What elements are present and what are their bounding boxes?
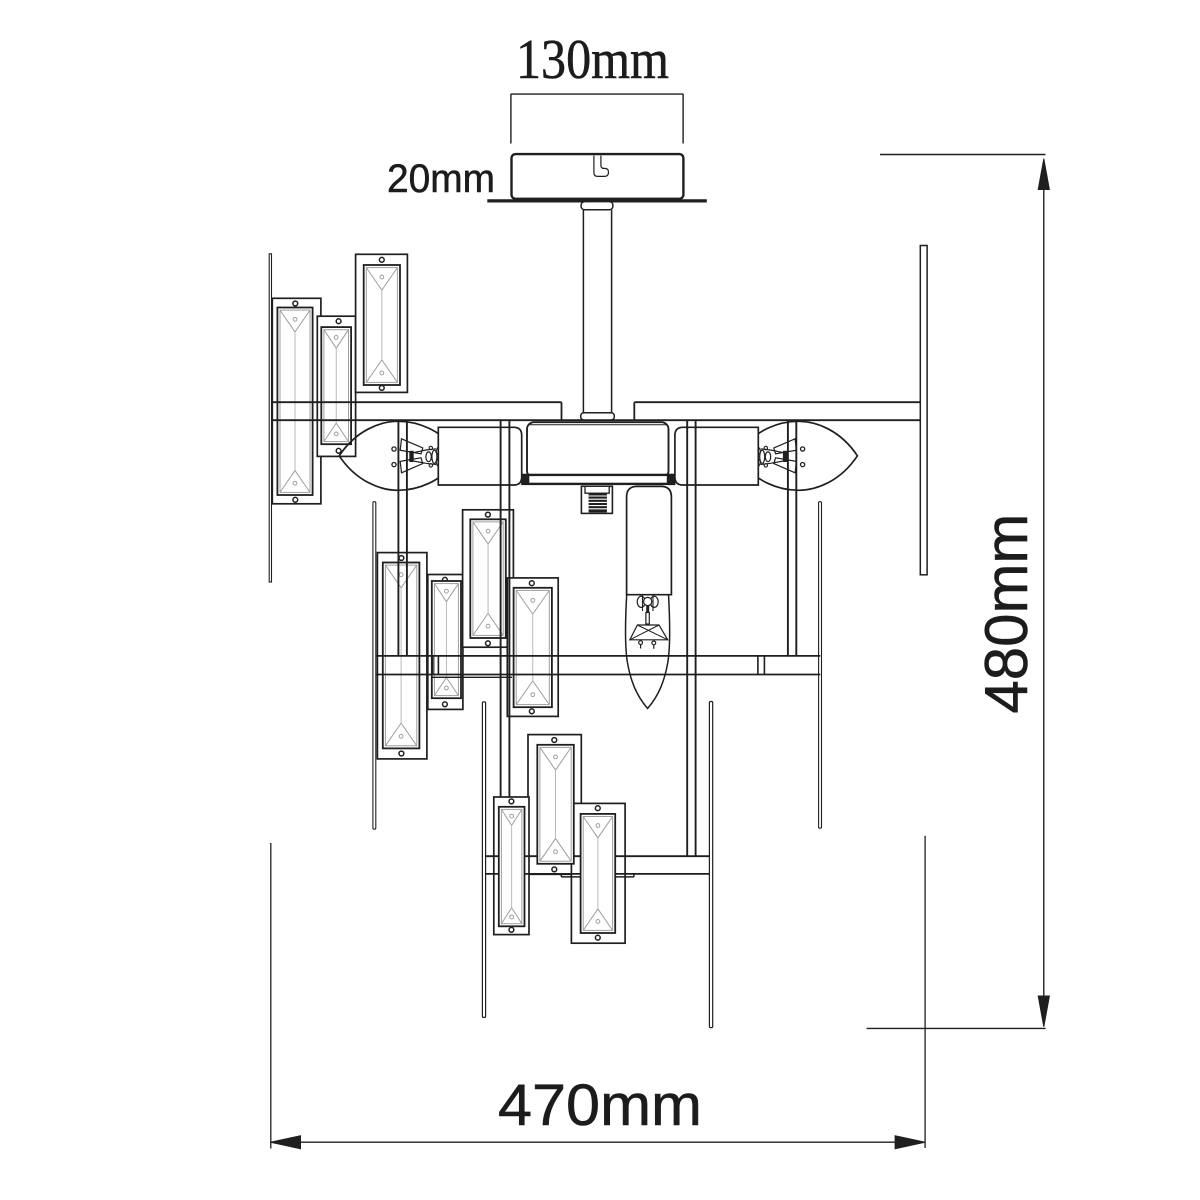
svg-text:130mm: 130mm (516, 29, 669, 91)
svg-text:480mm: 480mm (973, 514, 1040, 714)
svg-text:470mm: 470mm (498, 1073, 702, 1138)
svg-text:20mm: 20mm (387, 157, 495, 201)
